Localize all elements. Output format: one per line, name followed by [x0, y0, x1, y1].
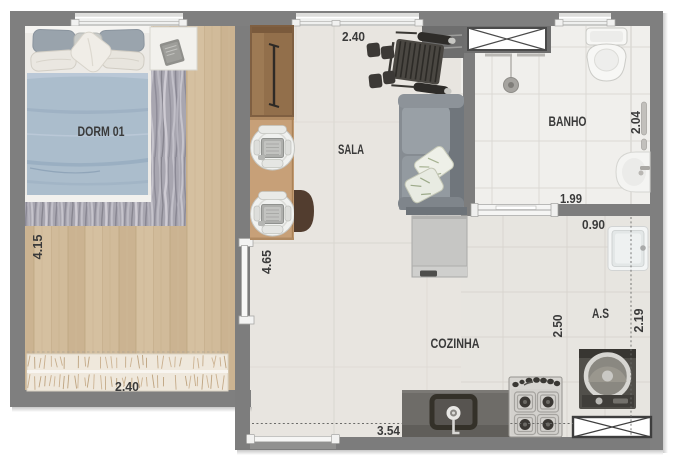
svg-text:BANHO: BANHO: [549, 114, 587, 129]
svg-text:1.99: 1.99: [560, 191, 582, 206]
svg-text:4.15: 4.15: [30, 235, 45, 260]
svg-text:0.90: 0.90: [582, 217, 605, 232]
svg-text:2.40: 2.40: [342, 29, 365, 44]
svg-text:2.19: 2.19: [631, 309, 646, 333]
svg-text:4.65: 4.65: [259, 250, 274, 274]
svg-text:A.S: A.S: [592, 306, 609, 321]
svg-text:DORM 01: DORM 01: [78, 124, 125, 139]
svg-text:2.04: 2.04: [628, 110, 643, 134]
svg-text:3.54: 3.54: [377, 423, 401, 438]
svg-text:SALA: SALA: [338, 142, 364, 157]
svg-text:2.40: 2.40: [115, 379, 139, 394]
svg-text:COZINHA: COZINHA: [431, 336, 480, 351]
svg-text:2.50: 2.50: [550, 315, 565, 338]
